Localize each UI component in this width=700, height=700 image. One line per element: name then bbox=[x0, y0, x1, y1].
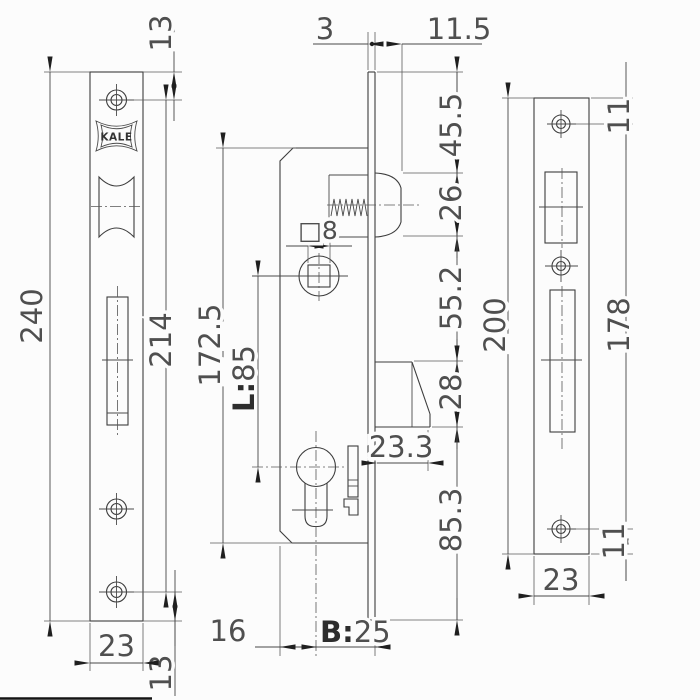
dim-faceplate-width: 23 bbox=[98, 629, 135, 663]
brand-logo-text: KALE bbox=[100, 132, 132, 144]
faceplate-extension-lines bbox=[44, 72, 182, 671]
edge-chain-dimension: 45.5 26 55.2 28 85.3 bbox=[434, 72, 468, 620]
lock-case-dimensions: 3 11.5 □8 172.5 L:85 23.3 16 B:25 bbox=[193, 12, 491, 656]
screw-hole-top bbox=[99, 84, 134, 116]
dim-bolt-opening: 28 bbox=[434, 374, 468, 411]
faceplate-dimensions: 240 214 13 13 23 bbox=[15, 15, 182, 696]
faceplate-front-view: KALE bbox=[90, 72, 143, 621]
dim-spindle-square: □8 bbox=[298, 216, 338, 245]
dim-centers-value: 85 bbox=[227, 345, 261, 382]
dim-11-top-strike: 11 bbox=[602, 62, 636, 150]
dim-backset-value: 25 bbox=[354, 615, 391, 649]
spindle-follower bbox=[252, 253, 348, 301]
bolt-slot-front bbox=[102, 286, 133, 437]
strike-screw-hole-top bbox=[547, 110, 576, 138]
dim-3-faceplate-thickness: 3 bbox=[313, 12, 374, 46]
dim-bolt-throw: 23.3 bbox=[369, 430, 434, 464]
lock-case-side-view bbox=[252, 72, 430, 656]
spring-coil bbox=[331, 199, 367, 216]
roller-bolt-front bbox=[91, 177, 142, 237]
strike-plate-front-view bbox=[534, 98, 589, 554]
dim-backset-prefix: B: bbox=[320, 615, 354, 649]
dim-roller-projection: 11.5 bbox=[427, 12, 492, 46]
dim-centers-distance: L:85 bbox=[227, 345, 261, 412]
drawing-svg: KALE bbox=[0, 0, 700, 700]
strike-screw-hole-bottom bbox=[547, 515, 576, 543]
screw-hole-bottom bbox=[99, 576, 134, 608]
case-extension-lines bbox=[210, 32, 463, 656]
strike-bolt-cutout bbox=[541, 168, 582, 452]
faceplate-edge-strip bbox=[368, 72, 375, 620]
strike-plate-outline bbox=[534, 98, 589, 554]
strike-roller-cutout bbox=[539, 172, 583, 243]
dim-bottom-screw-offset: 13 bbox=[144, 655, 178, 692]
dim-tick-dot bbox=[370, 42, 374, 46]
dim-roller-opening: 26 bbox=[434, 185, 468, 222]
dim-strike-width: 23 bbox=[543, 563, 580, 597]
dim-11-bottom-strike: 11 bbox=[597, 523, 631, 581]
thrown-bolt-side bbox=[375, 362, 430, 427]
dim-strike-bottom-screw-offset: 11 bbox=[597, 523, 631, 560]
roller-bolt-side bbox=[327, 173, 421, 237]
dim-16-and-backset: 16 B:25 bbox=[210, 614, 391, 649]
dim-screw-span: 214 bbox=[144, 312, 178, 367]
dim-top-screw-offset: 13 bbox=[144, 15, 178, 52]
dim-top-to-roller: 45.5 bbox=[434, 93, 468, 158]
screw-hole-middle-bottom bbox=[99, 493, 134, 525]
dim-strike-overall-height: 200 bbox=[478, 297, 512, 352]
dim-square-8: □8 bbox=[286, 216, 352, 246]
dim-case-height: 172.5 bbox=[193, 303, 227, 386]
dim-13-top: 13 bbox=[144, 15, 178, 121]
dim-faceplate-thickness: 3 bbox=[316, 12, 334, 46]
dim-23-strike-width: 23 bbox=[534, 563, 589, 597]
faceplate-outline bbox=[90, 72, 143, 621]
dim-bolt-to-bottom: 85.3 bbox=[434, 488, 468, 553]
brand-logo-stamp: KALE bbox=[96, 121, 137, 151]
dim-overall-height: 240 bbox=[15, 288, 49, 343]
lock-technical-drawing: KALE bbox=[0, 0, 700, 700]
dim-11-5-roller-projection: 11.5 bbox=[402, 12, 491, 46]
dim-23-3-bolt-throw: 23.3 bbox=[369, 430, 434, 464]
dim-case-edge-to-cylinder: 16 bbox=[210, 614, 247, 648]
dim-roller-to-bolt: 55.2 bbox=[434, 266, 468, 331]
strike-screw-hole-middle bbox=[545, 250, 578, 282]
case-outline bbox=[280, 148, 368, 543]
dim-13-bottom: 13 bbox=[144, 570, 178, 696]
dim-backset: B:25 bbox=[320, 615, 391, 649]
dim-centers-prefix: L: bbox=[227, 382, 261, 412]
dim-strike-top-screw-offset: 11 bbox=[602, 98, 636, 135]
cylinder-retainer bbox=[344, 446, 358, 515]
strike-plate-dimensions: 200 178 11 11 23 bbox=[478, 62, 636, 605]
dim-strike-screw-span: 178 bbox=[602, 297, 636, 352]
